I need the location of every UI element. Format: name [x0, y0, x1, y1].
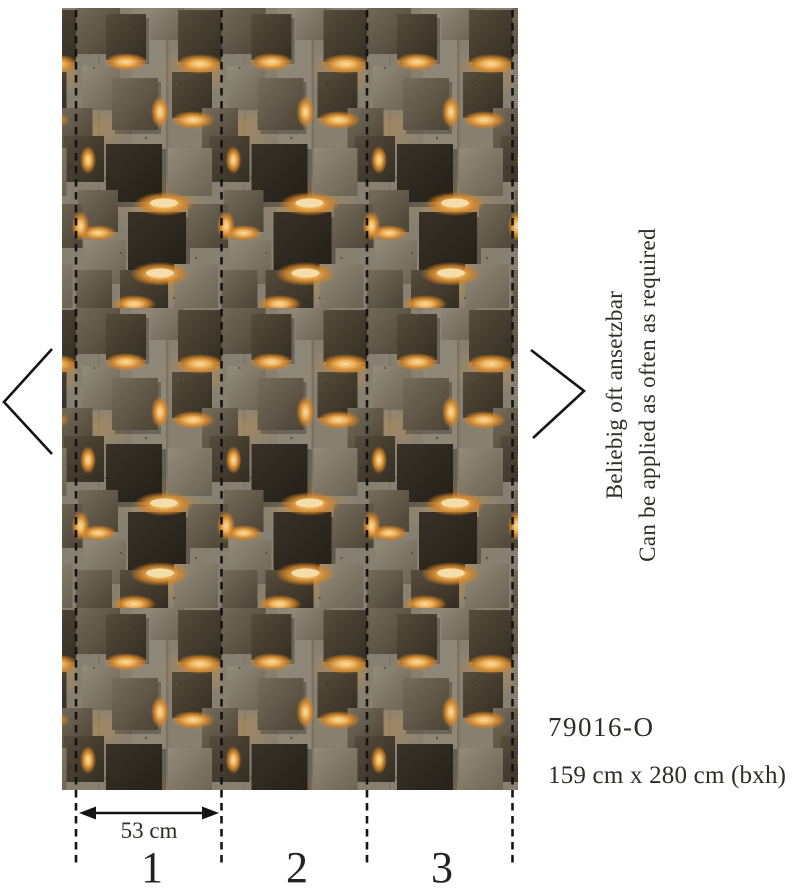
- chevron-right-icon: [531, 350, 584, 438]
- chevron-left-icon: [4, 349, 52, 454]
- annotation-overlay: [0, 0, 800, 895]
- product-dimensions: 159 cm x 280 cm (bxh): [548, 762, 786, 790]
- repeat-note-de: Beliebig oft ansetzbar: [598, 228, 631, 562]
- panel-number-1: 1: [141, 842, 163, 893]
- product-sheet: Beliebig oft ansetzbar Can be applied as…: [0, 0, 800, 895]
- repeat-note: Beliebig oft ansetzbar Can be applied as…: [598, 228, 664, 562]
- panel-width-label: 53 cm: [121, 818, 178, 844]
- repeat-note-en: Can be applied as often as required: [631, 228, 664, 562]
- panel-number-3: 3: [431, 842, 453, 893]
- panel-number-2: 2: [286, 842, 308, 893]
- product-code: 79016-O: [548, 712, 655, 743]
